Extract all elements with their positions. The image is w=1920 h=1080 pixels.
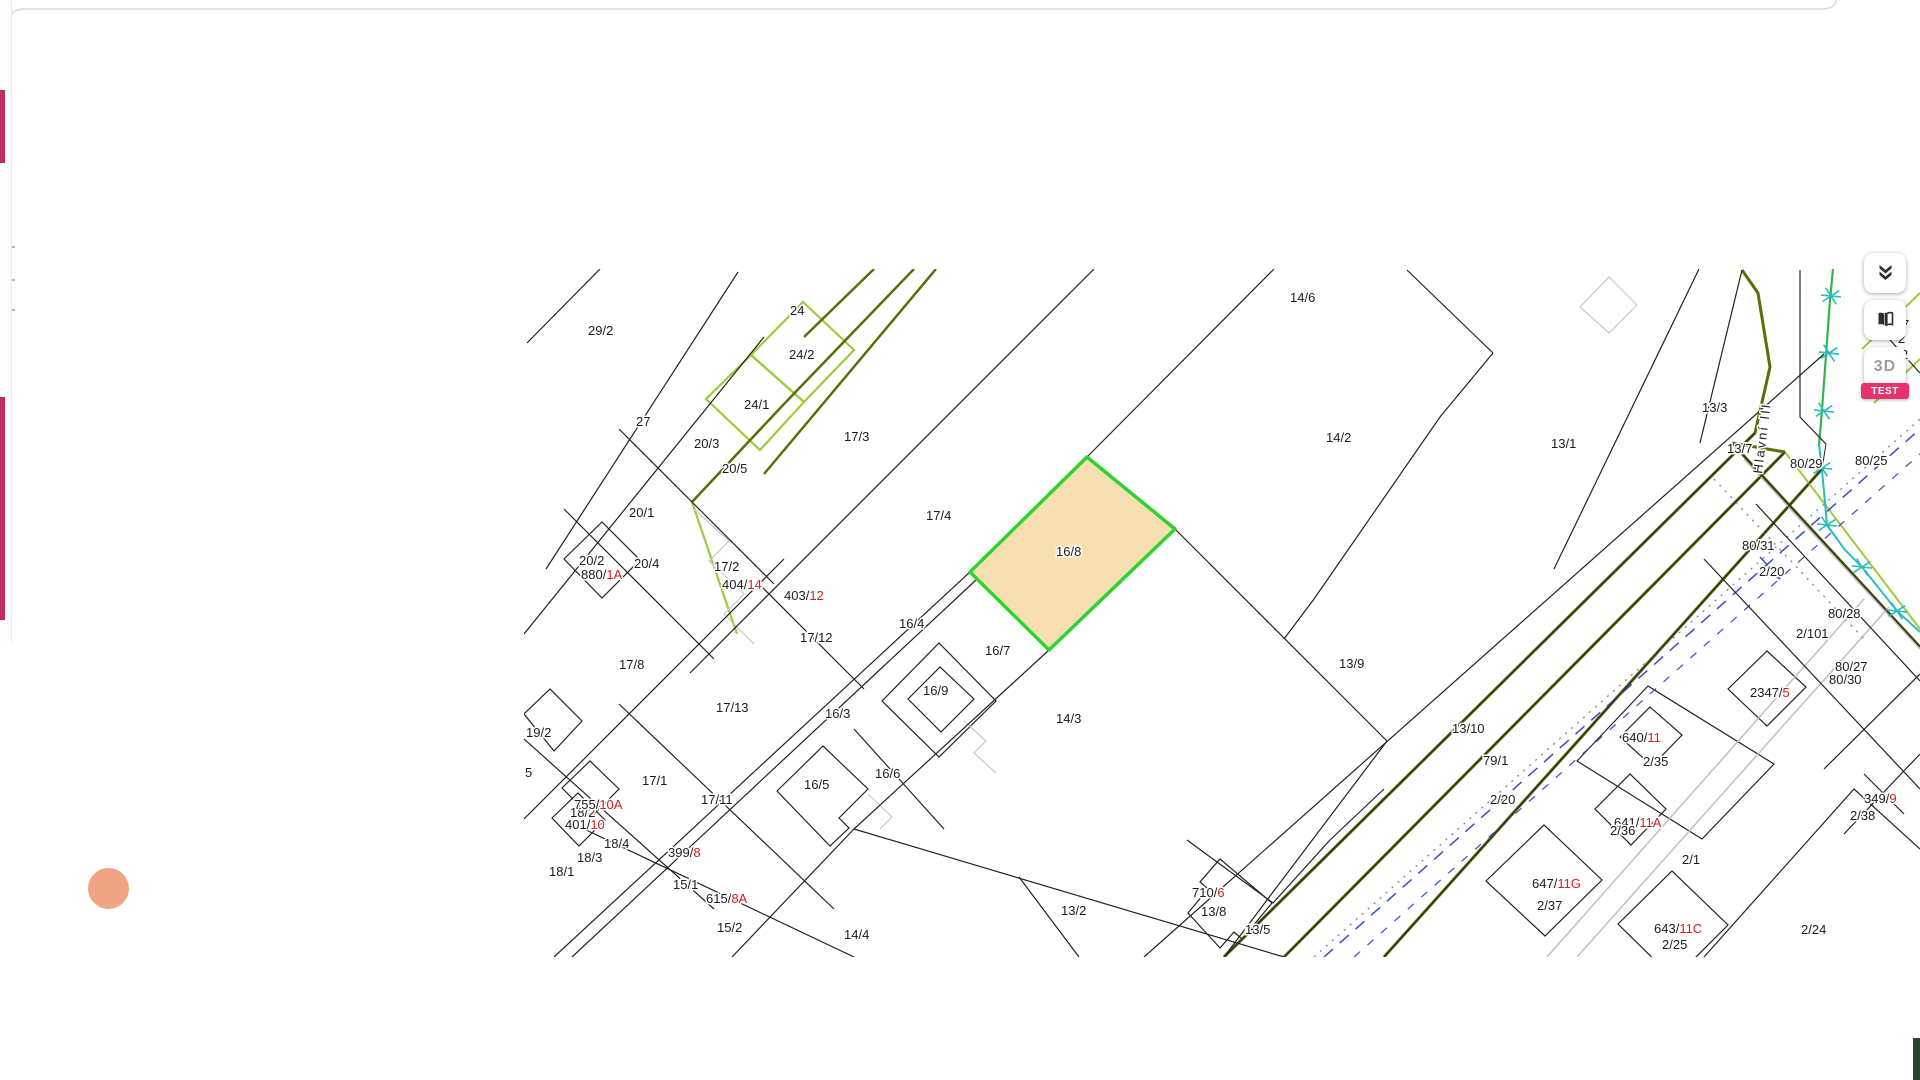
parcel-label: 19/2 xyxy=(526,725,551,740)
parcel-label: 17/12 xyxy=(800,630,833,645)
left-drawer-edge[interactable] xyxy=(0,0,12,642)
survey-point-icon xyxy=(1851,558,1873,576)
parcel-label: 16/9 xyxy=(923,683,948,698)
parcel-label: 13/8 xyxy=(1201,904,1226,919)
parcel-outline xyxy=(908,667,974,732)
app-root: 29/2272424/224/120/320/520/120/220/4880/… xyxy=(0,0,1920,1080)
parcel-label: 80/29 xyxy=(1790,456,1823,471)
parcel-label: 2/20 xyxy=(1490,792,1515,807)
parcel-label: 24 xyxy=(790,303,804,318)
drawer-accent-bar-top xyxy=(0,90,5,163)
parcel-label: 17/8 xyxy=(619,657,644,672)
drawer-accent-bar-bottom xyxy=(0,397,5,620)
map-line-k xyxy=(564,509,714,659)
parcel-label: 15/2 xyxy=(717,920,742,935)
map-svg[interactable]: 29/2272424/224/120/320/520/120/220/4880/… xyxy=(524,269,1920,957)
map-line-k xyxy=(1144,354,1824,957)
building-label: 615/8A xyxy=(706,891,748,906)
parcel-label: 16/8 xyxy=(1056,544,1081,559)
panel-border xyxy=(9,0,1836,78)
parcel-label: 2/36 xyxy=(1610,823,1635,838)
map-line-k xyxy=(1407,270,1493,353)
map-compare-icon xyxy=(1875,309,1896,332)
map-line-blue xyxy=(1354,454,1920,957)
street-label: Hlavní III xyxy=(1750,402,1774,475)
map-line-k xyxy=(732,829,854,957)
parcel-label: 17/2 xyxy=(714,559,739,574)
building-label: 640/11 xyxy=(1622,730,1661,745)
parcel-outline xyxy=(777,746,868,846)
building-label: 755/10A xyxy=(574,797,623,812)
parcel-label: 2/25 xyxy=(1662,937,1687,952)
parcel-label: 16/7 xyxy=(985,643,1010,658)
parcel-label: 2/37 xyxy=(1537,898,1562,913)
map-line-k xyxy=(1284,353,1493,639)
parcel-label: 17/13 xyxy=(716,700,749,715)
map-canvas[interactable]: 29/2272424/224/120/320/520/120/220/4880/… xyxy=(524,269,1920,957)
parcel-label: 24/1 xyxy=(744,397,769,412)
map-line-k xyxy=(572,580,976,957)
3d-button[interactable]: 3D TEST xyxy=(1864,347,1906,387)
parcel-label: 5 xyxy=(525,765,532,780)
parcel-label: 80/28 xyxy=(1828,606,1861,621)
map-line-lgray xyxy=(868,794,892,829)
building-label: 710/6 xyxy=(1192,885,1225,900)
building-label: 403/12 xyxy=(784,588,824,603)
parcel-label: 80/31 xyxy=(1742,538,1775,553)
parcel-label: 13/1 xyxy=(1551,436,1576,451)
corner-panel-fragment xyxy=(1913,1038,1920,1080)
parcel-label: 14/4 xyxy=(844,927,869,942)
parcel-label: 29/2 xyxy=(588,323,613,338)
parcel-label: 15/1 xyxy=(673,877,698,892)
parcel-label: 2/38 xyxy=(1850,808,1875,823)
building-label: 647/11G xyxy=(1532,876,1581,891)
parcel-label: 17/3 xyxy=(844,429,869,444)
parcel-outline xyxy=(524,689,582,751)
map-line-k xyxy=(554,269,1274,957)
building-label: 880/1A xyxy=(581,567,623,582)
map-controls: 3D TEST xyxy=(1864,253,1912,394)
parcel-label: 20/5 xyxy=(722,461,747,476)
parcel-outline xyxy=(882,643,996,757)
building-label: 2347/5 xyxy=(1750,685,1790,700)
parcel-label: 16/5 xyxy=(804,777,829,792)
map-line-k xyxy=(1700,270,1742,443)
survey-point-icon xyxy=(1813,402,1835,420)
parcel-label: 13/2 xyxy=(1061,903,1086,918)
parcel-label: 2/101 xyxy=(1796,626,1829,641)
parcel-label: 18/3 xyxy=(577,850,602,865)
panel-top-edge xyxy=(0,0,1920,120)
building-label: 349/9 xyxy=(1864,791,1897,806)
layers-collapse-icon xyxy=(1876,262,1895,285)
parcel-label: 13/3 xyxy=(1702,400,1727,415)
parcel-label: 20/2 xyxy=(579,553,604,568)
survey-point-icon xyxy=(1818,344,1840,362)
parcel-label: 24/2 xyxy=(789,347,814,362)
building-label: 643/11C xyxy=(1654,921,1702,936)
parcel-label: 17/4 xyxy=(926,508,951,523)
3d-button-label: 3D xyxy=(1874,358,1896,376)
map-line-k xyxy=(1554,269,1699,569)
parcel-label: 16/4 xyxy=(899,616,924,631)
map-line-k xyxy=(1175,529,1387,741)
parcel-label: 2/1 xyxy=(1682,852,1700,867)
drawer-speck xyxy=(12,279,15,281)
parcel-label: 13/5 xyxy=(1245,922,1270,937)
map-line-k xyxy=(854,650,1049,829)
parcel-label: 14/3 xyxy=(1056,711,1081,726)
parcel-label: 20/1 xyxy=(629,505,654,520)
layers-button[interactable] xyxy=(1864,253,1906,293)
parcel-label: 13/10 xyxy=(1452,721,1485,736)
map-line-k xyxy=(1704,559,1920,789)
parcel-label: 27 xyxy=(636,414,650,429)
parcel-label: 14/2 xyxy=(1326,430,1351,445)
parcel-label: 80/25 xyxy=(1855,453,1888,468)
parcel-label: 17/1 xyxy=(642,773,667,788)
map-line-dot xyxy=(1314,419,1920,957)
parcel-label: 80/30 xyxy=(1829,672,1862,687)
parcel-label: 16/3 xyxy=(825,706,850,721)
parcel-label: 18/4 xyxy=(604,836,629,851)
parcel-outline xyxy=(1580,277,1637,333)
map-line-k xyxy=(1824,674,1920,769)
parcel-label: 17/11 xyxy=(701,792,733,807)
map-line-teal xyxy=(1819,445,1920,632)
parcel-label: 13/7 xyxy=(1727,441,1752,456)
drawer-speck xyxy=(12,309,15,311)
building-label: 404/14 xyxy=(722,577,762,592)
map-line-k xyxy=(1756,504,1920,681)
parcel-label: 2/24 xyxy=(1801,922,1826,937)
test-badge: TEST xyxy=(1861,383,1909,399)
parcel-label: 2/35 xyxy=(1643,754,1668,769)
parcel-label: 18/1 xyxy=(549,864,574,879)
parcel-label: 79/1 xyxy=(1483,753,1508,768)
compare-button[interactable] xyxy=(1864,300,1906,340)
building-label: 399/8 xyxy=(668,845,701,860)
parcel-label: 2/20 xyxy=(1759,564,1784,579)
parcel-label: 20/4 xyxy=(634,556,659,571)
parcel-label: 16/6 xyxy=(875,766,900,781)
building-label: 401/10 xyxy=(565,817,605,832)
parcel-label: 20/3 xyxy=(694,436,719,451)
orange-marker xyxy=(88,868,129,909)
drawer-speck xyxy=(12,246,15,248)
map-line-olive xyxy=(804,269,874,337)
map-line-k xyxy=(1384,444,1826,957)
map-line-lgray xyxy=(964,721,996,773)
parcel-label: 13/9 xyxy=(1339,656,1364,671)
parcel-label: 14/6 xyxy=(1290,290,1315,305)
